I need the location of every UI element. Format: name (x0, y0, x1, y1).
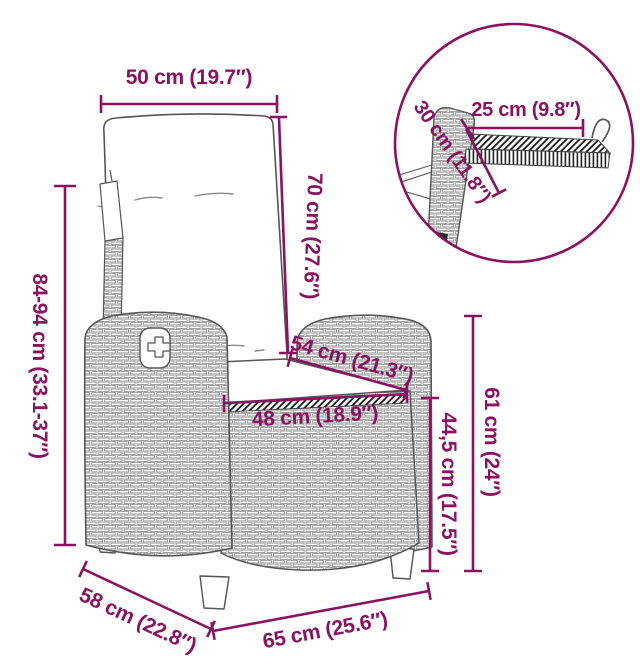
dim-line-top-width (101, 95, 277, 113)
label-detail-table-width: 25 cm (9.8″) (471, 99, 580, 121)
dim-line-armrest-height (464, 316, 482, 571)
label-overall-height: 84-94 cm (33.1-37″) (28, 273, 51, 458)
label-armrest-height: 61 cm (24″) (480, 387, 503, 496)
dim-line-overall-height (54, 186, 76, 545)
label-overall-width: 65 cm (25.6″) (261, 608, 389, 654)
label-top-width: 50 cm (19.7″) (126, 66, 252, 89)
detail-callout (395, 24, 633, 262)
diagram-canvas: 50 cm (19.7″) 70 cm (27.6″) 84-94 cm (33… (0, 0, 640, 660)
label-seat-height: 44,5 cm (17.5″) (437, 412, 460, 555)
label-backrest-height: 70 cm (27.6″) (299, 172, 326, 299)
dimension-diagram: 50 cm (19.7″) 70 cm (27.6″) 84-94 cm (33… (0, 0, 640, 660)
